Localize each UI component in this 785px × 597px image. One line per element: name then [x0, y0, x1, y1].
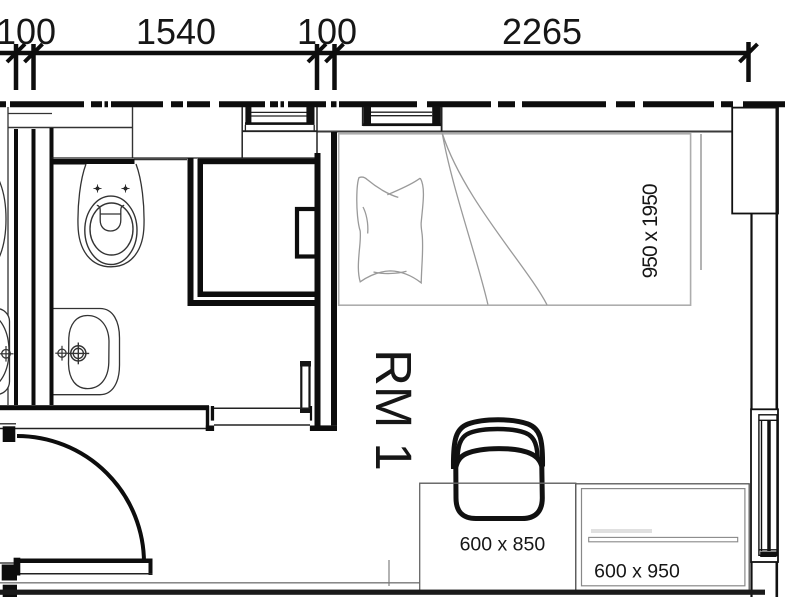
- svg-text:600 x 950: 600 x 950: [594, 560, 680, 582]
- svg-text:100: 100: [0, 11, 56, 52]
- svg-text:950 x 1950: 950 x 1950: [639, 184, 662, 278]
- svg-text:RM 1: RM 1: [365, 349, 422, 471]
- svg-text:600 x 850: 600 x 850: [460, 534, 546, 556]
- svg-text:1540: 1540: [136, 11, 216, 52]
- svg-text:2265: 2265: [502, 11, 582, 52]
- svg-text:100: 100: [297, 11, 357, 52]
